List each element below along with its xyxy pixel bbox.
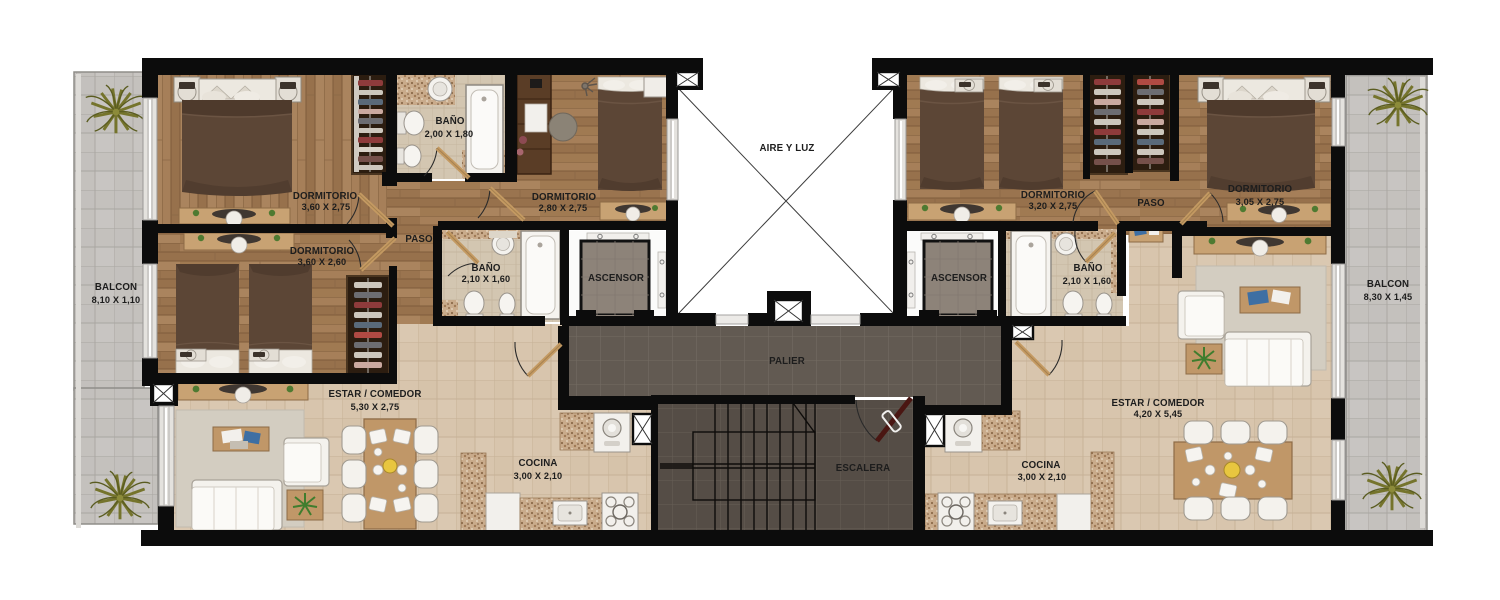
svg-text:PASO: PASO [405, 234, 433, 245]
svg-text:3,60 X 2,60: 3,60 X 2,60 [298, 257, 347, 267]
svg-text:DORMITORIO: DORMITORIO [1021, 190, 1086, 201]
svg-text:PALIER: PALIER [769, 356, 805, 367]
svg-text:PASO: PASO [1137, 198, 1165, 209]
svg-text:BAÑO: BAÑO [471, 263, 500, 274]
svg-text:5,30 X 2,75: 5,30 X 2,75 [351, 402, 400, 412]
svg-text:DORMITORIO: DORMITORIO [532, 192, 597, 203]
svg-text:COCINA: COCINA [1021, 460, 1060, 471]
svg-text:4,20 X 5,45: 4,20 X 5,45 [1134, 409, 1183, 419]
svg-text:ASCENSOR: ASCENSOR [931, 273, 987, 284]
svg-text:BALCON: BALCON [1367, 279, 1409, 290]
svg-text:3,60 X 2,75: 3,60 X 2,75 [302, 202, 351, 212]
svg-text:3,00 X 2,10: 3,00 X 2,10 [514, 471, 563, 481]
svg-text:COCINA: COCINA [518, 458, 557, 469]
svg-text:2,10 X 1,60: 2,10 X 1,60 [1063, 276, 1112, 286]
svg-text:2,00 X 1,80: 2,00 X 1,80 [425, 129, 474, 139]
svg-text:DORMITORIO: DORMITORIO [1228, 184, 1293, 195]
svg-text:3,00 X 2,10: 3,00 X 2,10 [1018, 472, 1067, 482]
svg-text:BAÑO: BAÑO [1073, 263, 1102, 274]
svg-text:DORMITORIO: DORMITORIO [293, 191, 358, 202]
svg-text:3,20 X 2,75: 3,20 X 2,75 [1029, 201, 1078, 211]
svg-text:8,10 X 1,10: 8,10 X 1,10 [92, 295, 141, 305]
svg-text:ASCENSOR: ASCENSOR [588, 273, 644, 284]
svg-text:ESTAR / COMEDOR: ESTAR / COMEDOR [1111, 398, 1204, 409]
svg-text:ESTAR / COMEDOR: ESTAR / COMEDOR [328, 389, 421, 400]
svg-text:8,30 X 1,45: 8,30 X 1,45 [1364, 292, 1413, 302]
svg-text:3,05 X 2,75: 3,05 X 2,75 [1236, 197, 1285, 207]
svg-text:2,80 X 2,75: 2,80 X 2,75 [539, 203, 588, 213]
svg-text:BAÑO: BAÑO [435, 116, 464, 127]
svg-text:ESCALERA: ESCALERA [836, 463, 891, 474]
svg-text:AIRE Y LUZ: AIRE Y LUZ [760, 143, 815, 154]
svg-text:BALCON: BALCON [95, 282, 137, 293]
svg-text:DORMITORIO: DORMITORIO [290, 246, 355, 257]
svg-text:2,10 X 1,60: 2,10 X 1,60 [462, 274, 511, 284]
